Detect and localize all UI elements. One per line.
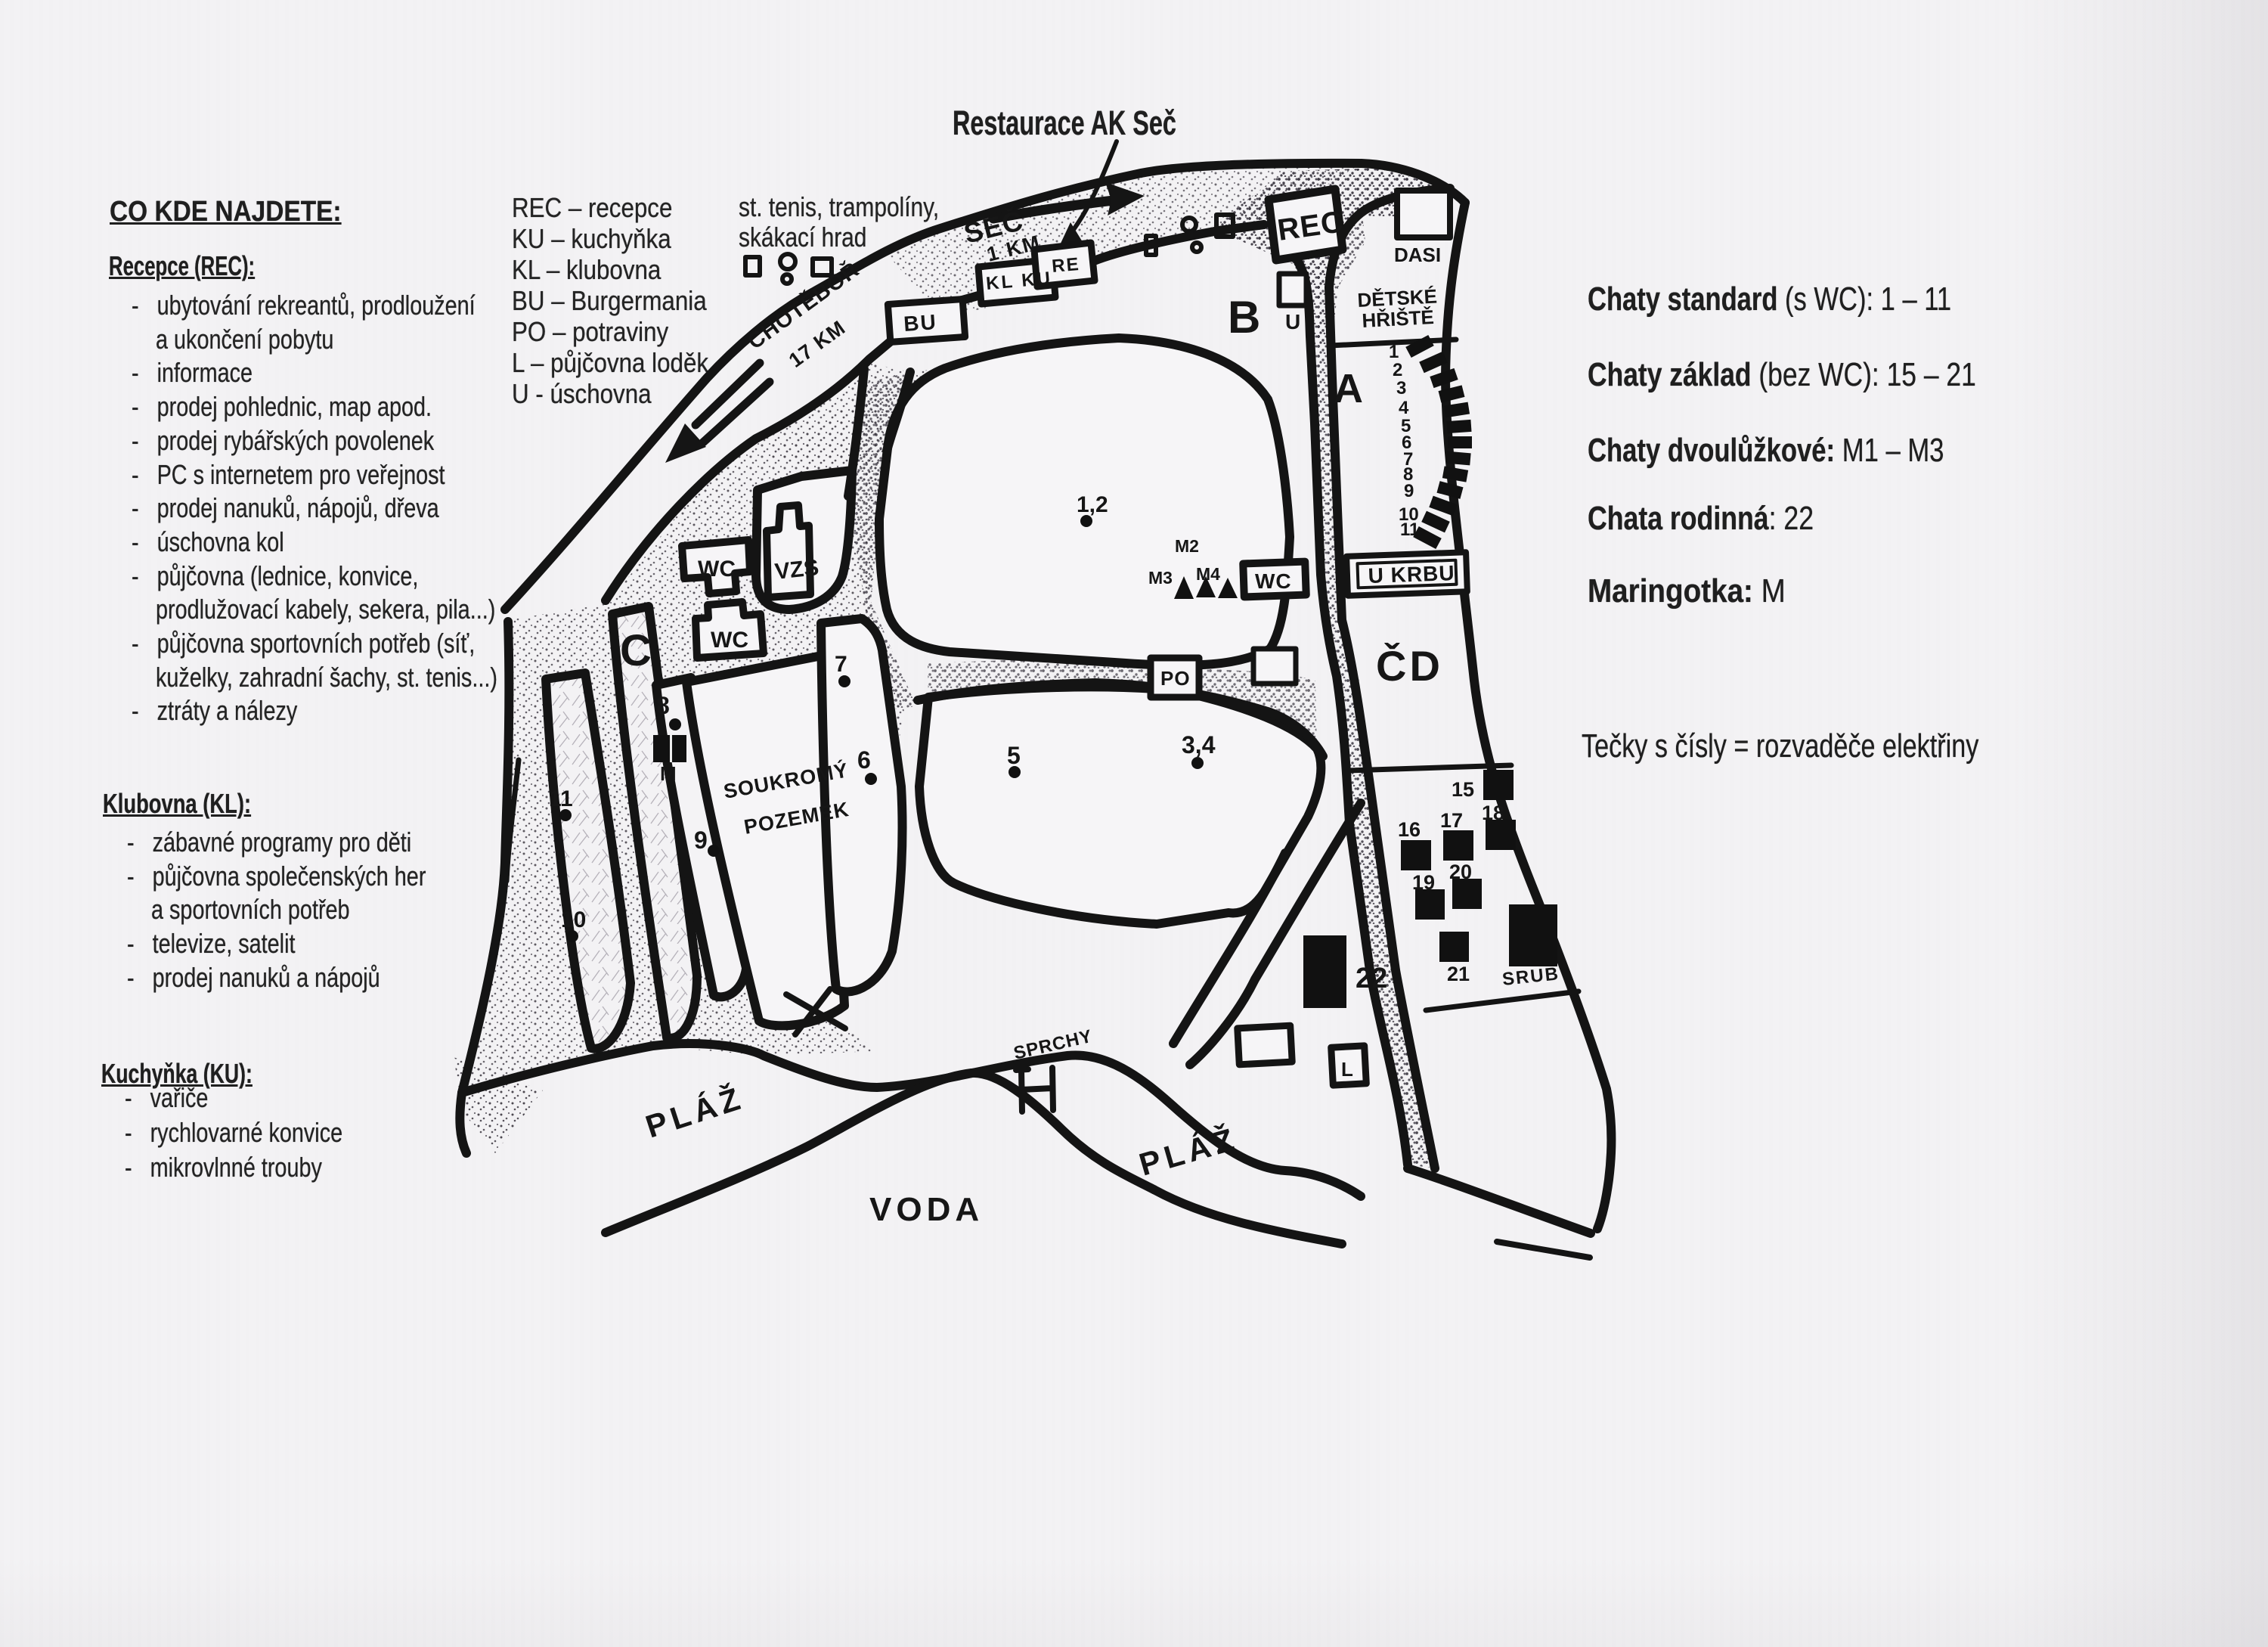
svg-text:1: 1 [1389,342,1399,362]
svg-text:B: B [1228,292,1260,343]
svg-text:WC: WC [711,628,748,653]
svg-text:PLÁŽ: PLÁŽ [641,1079,748,1145]
svg-text:WC: WC [1255,569,1292,593]
svg-text:U KRBU: U KRBU [1368,561,1455,588]
svg-text:M3: M3 [1148,568,1173,588]
svg-text:2: 2 [1393,360,1402,380]
svg-text:18: 18 [1482,802,1504,824]
svg-text:11: 11 [549,786,573,811]
svg-text:17: 17 [1440,809,1463,832]
svg-text:C: C [620,626,652,675]
svg-text:DASI: DASI [1394,243,1441,266]
svg-text:VODA: VODA [869,1191,984,1228]
svg-text:PLÁŽ: PLÁŽ [1135,1120,1242,1183]
svg-text:3: 3 [1396,378,1406,399]
svg-text:8: 8 [656,692,670,719]
svg-text:A: A [1334,366,1363,411]
svg-text:9: 9 [1404,481,1414,501]
svg-text:SRUB: SRUB [1501,963,1560,990]
svg-text:5: 5 [1007,742,1021,769]
svg-text:3,4: 3,4 [1182,731,1216,758]
svg-text:19: 19 [1412,871,1435,894]
svg-text:U: U [1285,310,1300,333]
svg-text:7: 7 [835,652,847,677]
svg-text:M4: M4 [1196,564,1220,584]
svg-text:BU: BU [903,310,938,336]
svg-text:15: 15 [1452,778,1474,801]
svg-text:20: 20 [1449,861,1472,883]
svg-text:M: M [660,762,677,785]
svg-text:M2: M2 [1175,536,1199,556]
svg-text:21: 21 [1447,963,1470,985]
svg-text:L: L [1341,1058,1353,1081]
svg-text:4: 4 [1399,398,1409,418]
svg-text:PO: PO [1160,667,1191,690]
svg-text:RE: RE [1051,254,1081,277]
svg-text:HŘIŠTĚ: HŘIŠTĚ [1362,306,1435,332]
svg-text:9: 9 [694,827,708,854]
svg-text:ČD: ČD [1376,642,1443,690]
svg-text:6: 6 [857,746,871,774]
svg-text:22: 22 [1356,963,1387,994]
svg-text:VZS: VZS [773,555,820,585]
svg-text:WC: WC [698,557,736,582]
svg-text:1,2: 1,2 [1077,492,1108,517]
svg-text:10: 10 [561,907,586,932]
svg-text:16: 16 [1398,818,1421,841]
